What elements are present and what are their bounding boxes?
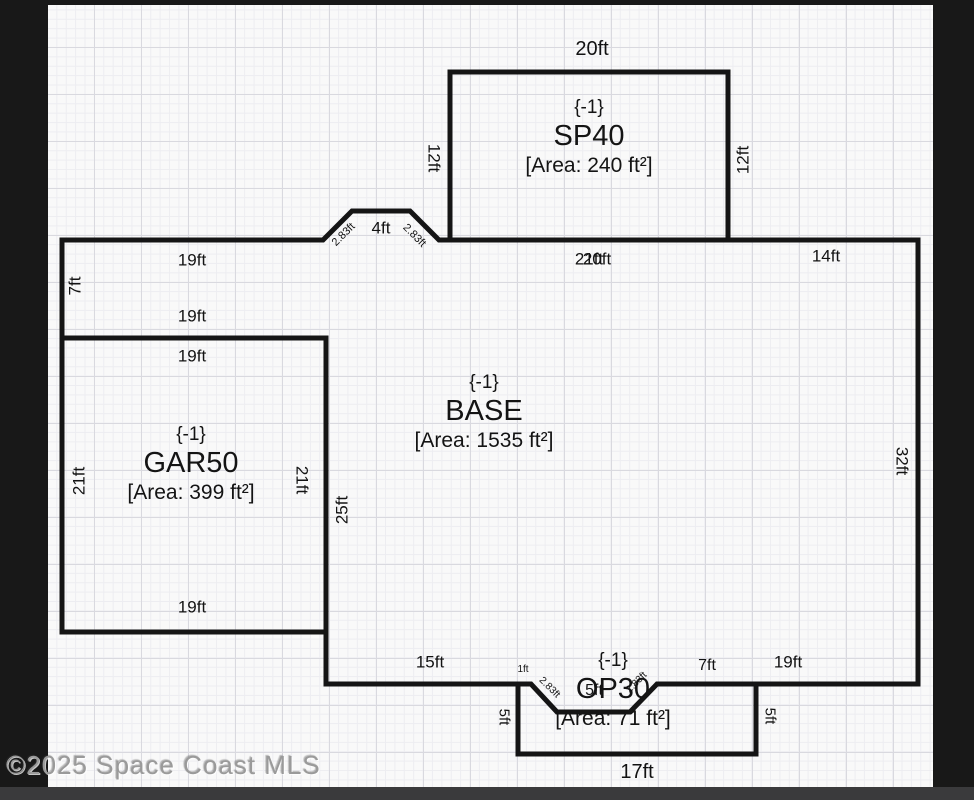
room-area-gar50: [Area: 399 ft²] xyxy=(127,479,254,506)
room-area-base: [Area: 1535 ft²] xyxy=(415,427,554,454)
dim-op30-right: 5ft xyxy=(763,708,778,725)
dim-bump-top: 4ft xyxy=(372,220,391,237)
room-code-gar50: {-1} xyxy=(127,423,254,447)
room-code-sp40: {-1} xyxy=(525,96,652,120)
dim-op30-bottom: 17ft xyxy=(620,762,653,782)
dim-gar50-bottom: 19ft xyxy=(178,599,206,616)
dim-base-top-right: 14ft xyxy=(812,248,840,265)
frame-left-bar xyxy=(0,0,48,787)
frame-top-bar xyxy=(0,0,974,5)
dim-notch-1ft: 1ft xyxy=(517,665,528,675)
room-code-op30: {-1} xyxy=(555,649,671,673)
watermark-text: ©2025 Space Coast MLS xyxy=(6,750,321,781)
room-name-gar50: GAR50 xyxy=(127,447,254,479)
dim-sp40-right: 12ft xyxy=(735,146,752,174)
room-label-gar50: {-1} GAR50 [Area: 399 ft²] xyxy=(127,423,254,506)
room-name-base: BASE xyxy=(415,395,554,427)
dim-op30-left: 5ft xyxy=(497,709,512,726)
room-code-base: {-1} xyxy=(415,371,554,395)
dim-gar50-right: 21ft xyxy=(294,466,311,494)
room-name-sp40: SP40 xyxy=(525,120,652,152)
dim-base-bottom-right: 19ft xyxy=(774,654,802,671)
frame-right-bar xyxy=(933,0,974,800)
dim-base-left-wall: 25ft xyxy=(334,496,351,524)
room-area-sp40: [Area: 240 ft²] xyxy=(525,152,652,179)
room-area-op30: [Area: 71 ft²] xyxy=(555,705,671,732)
frame-bottom-bar xyxy=(0,787,974,800)
dim-gar50-above-top: 19ft xyxy=(178,308,206,325)
dim-sp40-left: 12ft xyxy=(426,144,443,172)
dim-base-right-wall: 32ft xyxy=(894,447,911,475)
room-label-op30: {-1} OP30 [Area: 71 ft²] xyxy=(555,649,671,732)
dim-base-bottom-left: 15ft xyxy=(416,654,444,671)
dim-sp40-width: 20ft xyxy=(575,39,608,59)
dim-base-top-left: 19ft xyxy=(178,252,206,269)
dim-left-7ft: 7ft xyxy=(67,277,84,296)
dim-base-bottom-7ft: 7ft xyxy=(698,658,716,674)
room-name-op30: OP30 xyxy=(555,673,671,705)
dim-gar50-top: 19ft xyxy=(178,348,206,365)
dim-base-top-mid-20ft: 20ft xyxy=(583,251,611,268)
room-label-base: {-1} BASE [Area: 1535 ft²] xyxy=(415,371,554,454)
floorplan-canvas: 20ft12ft12ft2.83ft4ft2.83ft19ft21ft20ft1… xyxy=(0,0,974,800)
room-label-sp40: {-1} SP40 [Area: 240 ft²] xyxy=(525,96,652,179)
dim-gar50-left: 21ft xyxy=(71,467,88,495)
